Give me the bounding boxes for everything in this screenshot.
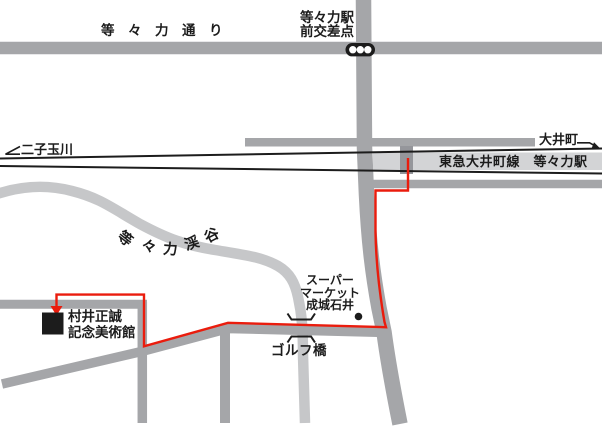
route-map: 等々力通り 等々力駅 前交差点 二子玉川 大井町 東急大井町線 等々力駅 等 々… <box>0 0 602 427</box>
road-golf-bridge-street <box>2 329 386 385</box>
label-golf-bridge: ゴルフ橋 <box>271 344 327 358</box>
valley-char: 力 <box>162 242 178 258</box>
arrow-down-left-icon <box>6 147 21 155</box>
traffic-light-icon <box>346 43 376 56</box>
label-supermarket: スーパー マーケット 成城石井 <box>293 274 367 312</box>
arrow-down-right-head <box>592 142 601 149</box>
label-oimachi: 大井町 <box>539 133 578 147</box>
label-futako-tamagawa: 二子玉川 <box>21 143 73 157</box>
museum-marker-icon <box>42 313 64 335</box>
label-todoroki-dori: 等々力通り <box>101 24 236 38</box>
label-intersection-line2: 前交差点 <box>297 25 357 39</box>
station-entrance <box>400 146 413 174</box>
map-graphics <box>0 0 602 427</box>
label-museum-line2: 記念美術館 <box>68 325 136 341</box>
label-museum: 村井正誠 記念美術館 <box>68 309 136 340</box>
label-museum-line1: 村井正誠 <box>68 309 136 325</box>
supermarket-dot-icon <box>355 313 363 321</box>
road-station-street <box>364 0 401 424</box>
label-supermarket-line1: スーパー <box>293 274 367 287</box>
label-intersection: 等々力駅 前交差点 <box>297 11 357 39</box>
label-station-box: 東急大井町線 等々力駅 <box>439 155 588 169</box>
label-supermarket-line3: 成城石井 <box>293 299 367 312</box>
